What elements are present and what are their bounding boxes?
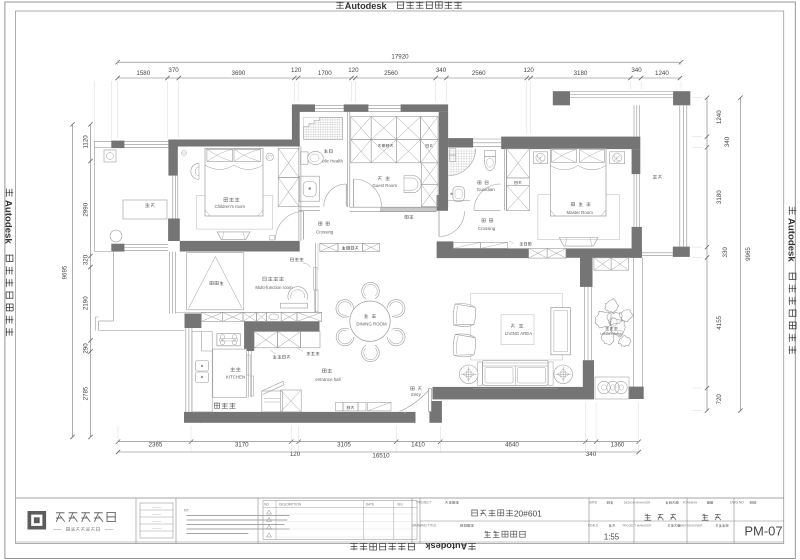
svg-text:NO: NO [264, 503, 269, 507]
svg-text:Master Room: Master Room [567, 210, 594, 215]
svg-text:CHIEF DESIGNER: CHIEF DESIGNER [678, 524, 703, 528]
svg-text:Entry: Entry [411, 392, 422, 397]
svg-text:340: 340 [436, 67, 447, 74]
svg-text:Guest Room: Guest Room [372, 183, 397, 188]
svg-text:Guardian: Guardian [477, 187, 496, 192]
svg-text:KITCHEN: KITCHEN [226, 375, 245, 380]
svg-text:1360: 1360 [611, 442, 625, 449]
svg-text:1120: 1120 [82, 135, 89, 149]
svg-text:DATE: DATE [589, 501, 597, 505]
svg-text:4155: 4155 [716, 315, 723, 329]
svg-text:2785: 2785 [82, 386, 89, 400]
svg-text:Autodesk: Autodesk [3, 200, 14, 244]
svg-text:NT:: NT: [184, 509, 189, 513]
svg-text:2365: 2365 [149, 442, 163, 449]
svg-text:2190: 2190 [82, 296, 89, 310]
svg-text:LIVING AREA: LIVING AREA [505, 331, 532, 336]
svg-text:DINING ROOM: DINING ROOM [356, 321, 387, 326]
svg-text:320: 320 [82, 254, 89, 265]
svg-text:1240: 1240 [655, 70, 669, 77]
svg-text:330: 330 [722, 247, 729, 258]
svg-text:4640: 4640 [505, 442, 519, 449]
svg-text:Crossing: Crossing [478, 226, 496, 231]
svg-text:Autodesk: Autodesk [786, 218, 797, 262]
svg-text:DWG NO: DWG NO [730, 501, 744, 505]
svg-text:2560: 2560 [472, 70, 486, 77]
svg-text:———: ——— [152, 519, 162, 523]
svg-text:———: ——— [152, 526, 162, 530]
svg-text:1:55: 1:55 [604, 533, 620, 542]
svg-text:9965: 9965 [745, 247, 752, 261]
svg-text:120: 120 [348, 67, 359, 74]
svg-text:SIG: SIG [397, 503, 403, 507]
svg-text:Crossing: Crossing [316, 230, 334, 235]
svg-text:3180: 3180 [574, 70, 588, 77]
svg-text:340: 340 [631, 67, 642, 74]
svg-text:Multi-function room: Multi-function room [255, 285, 293, 290]
svg-text:———: ——— [152, 512, 162, 516]
svg-text:DESCRIPTION: DESCRIPTION [279, 503, 301, 507]
svg-text:1240: 1240 [716, 110, 723, 124]
svg-text:1410: 1410 [411, 442, 425, 449]
svg-text:3105: 3105 [337, 442, 351, 449]
svg-text:Autodesk: Autodesk [424, 541, 467, 551]
svg-text:Autodesk: Autodesk [345, 1, 388, 11]
svg-text:1580: 1580 [136, 70, 150, 77]
svg-text:2560: 2560 [384, 70, 398, 77]
svg-text:SCALE: SCALE [588, 524, 598, 528]
svg-text:9695: 9695 [62, 265, 69, 279]
svg-text:PROJECT: PROJECT [417, 501, 432, 505]
svg-text:DATE: DATE [366, 503, 374, 507]
svg-text:20#601: 20#601 [514, 509, 542, 519]
svg-text:Children's room: Children's room [214, 204, 245, 209]
svg-text:PM-07: PM-07 [744, 524, 782, 539]
svg-text:16510: 16510 [372, 453, 390, 460]
svg-text:3170: 3170 [235, 442, 249, 449]
svg-text:340: 340 [724, 136, 731, 147]
svg-text:FOREMAN: FOREMAN [683, 501, 697, 505]
svg-text:2990: 2990 [82, 202, 89, 216]
svg-text:———: ——— [152, 505, 162, 509]
svg-text:17920: 17920 [391, 54, 409, 61]
svg-text:1700: 1700 [318, 70, 332, 77]
svg-text:290: 290 [82, 343, 89, 354]
svg-text:3180: 3180 [716, 190, 723, 204]
svg-text:720: 720 [716, 394, 723, 405]
svg-text:entrance hall: entrance hall [315, 377, 340, 382]
svg-text:PROJECT MANAGER: PROJECT MANAGER [623, 524, 652, 528]
svg-text:120: 120 [524, 67, 535, 74]
svg-text:370: 370 [168, 67, 179, 74]
svg-text:DESIGN MANAGER: DESIGN MANAGER [624, 501, 651, 505]
svg-text:120: 120 [291, 67, 302, 74]
svg-text:Leisure Area: Leisure Area [600, 332, 622, 336]
svg-text:DRAWING TITLE: DRAWING TITLE [412, 524, 437, 528]
svg-text:3690: 3690 [232, 70, 246, 77]
